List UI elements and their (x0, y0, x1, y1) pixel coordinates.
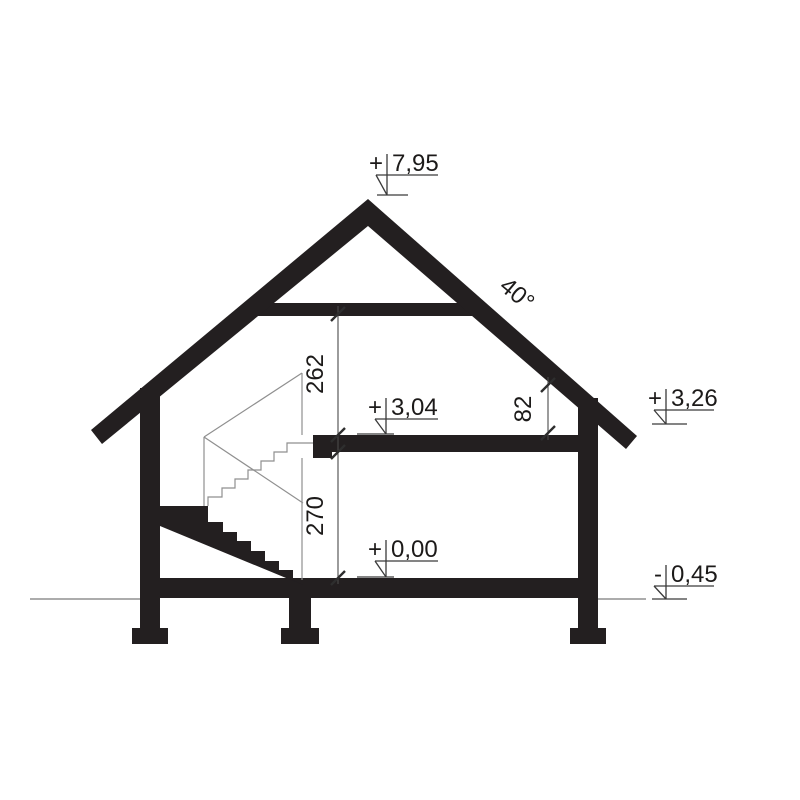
stair-rail-upper-line (204, 373, 302, 437)
upper-floor-slab (313, 435, 598, 452)
level-marker-eave: + 3,26 (648, 385, 718, 424)
level-eave-sign: + (648, 385, 662, 412)
level-ridge-sign: + (369, 150, 383, 177)
dimension-knee-wall-label: 82 (510, 396, 537, 423)
footing-middle (281, 628, 319, 644)
level-attic-floor-value: 3,04 (391, 394, 438, 421)
section-drawing: 262 270 82 40° + 7,95 + 3,04 + 0,00 (0, 0, 800, 800)
level-marker-ridge: + 7,95 (369, 150, 439, 195)
roof-left-slope (91, 199, 368, 444)
level-flag-line (654, 410, 666, 424)
level-ridge-value: 7,95 (392, 150, 439, 177)
level-ground-floor-value: 0,00 (391, 536, 438, 563)
level-terrain-sign: - (654, 561, 662, 588)
stair-lower-flight (160, 506, 303, 585)
level-terrain-value: 0,45 (671, 561, 718, 588)
level-eave-value: 3,26 (671, 385, 718, 412)
level-flag-line (376, 175, 387, 195)
level-marker-terrain: - 0,45 (652, 561, 718, 599)
collar-beam (256, 303, 474, 316)
level-ground-floor-sign: + (368, 536, 382, 563)
footing-left (132, 628, 168, 644)
level-flag-line (375, 419, 386, 434)
dimension-attic-height-label: 262 (302, 354, 329, 394)
dimension-ground-height-label: 270 (302, 496, 329, 536)
roof-angle-label: 40° (494, 272, 539, 316)
footing-right (570, 628, 606, 644)
level-marker-ground-floor: + 0,00 (357, 536, 438, 577)
level-marker-attic-floor: + 3,04 (357, 394, 438, 434)
level-flag-line (375, 561, 386, 577)
ground-floor-slab (140, 578, 598, 598)
pier-middle (289, 596, 311, 628)
slab-end-block (313, 435, 332, 458)
drawing-canvas: 262 270 82 40° + 7,95 + 3,04 + 0,00 (0, 0, 800, 800)
level-attic-floor-sign: + (368, 394, 382, 421)
dimension-knee-wall: 82 (510, 377, 555, 440)
